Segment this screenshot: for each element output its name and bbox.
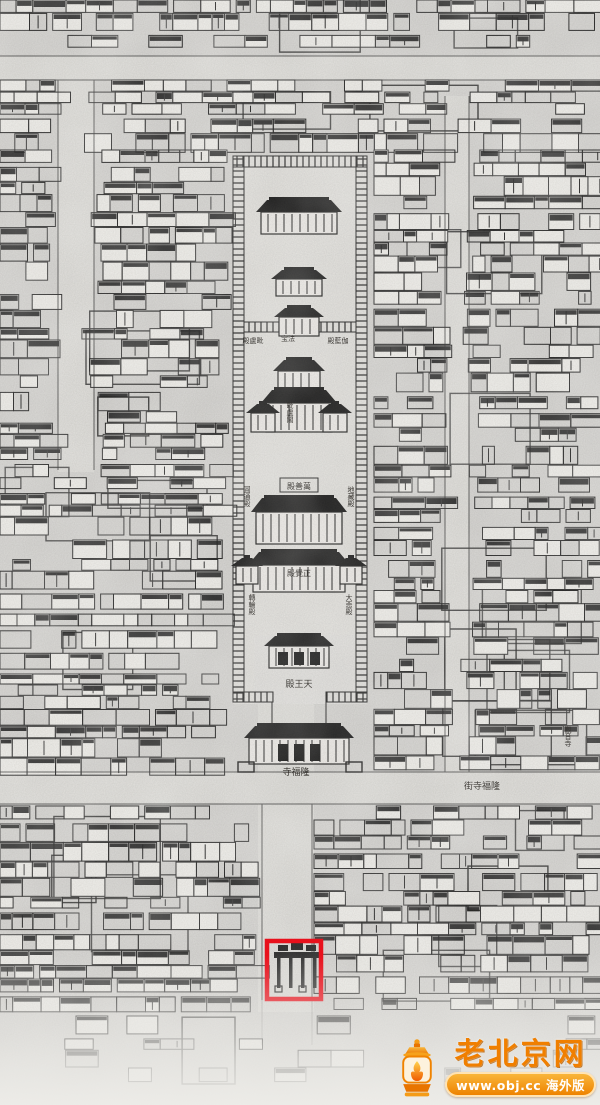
historical-map: 殿盧毗 宝法 殿藍伽 毗盧閣 殿善萬 圓通殿 地藏殿 殿覺正 轉輪殿 大悲殿 殿… <box>0 0 600 1105</box>
map-canvas: 殿盧毗 宝法 殿藍伽 毗盧閣 殿善萬 圓通殿 地藏殿 殿覺正 轉輪殿 大悲殿 殿… <box>0 0 600 1105</box>
watermark-title: 老北京网 <box>455 1040 587 1070</box>
lantern-logo-icon <box>394 1037 440 1099</box>
watermark: 老北京网 www.obj.cc 海外版 <box>394 1037 596 1099</box>
watermark-url: www.obj.cc 海外版 <box>445 1072 596 1097</box>
